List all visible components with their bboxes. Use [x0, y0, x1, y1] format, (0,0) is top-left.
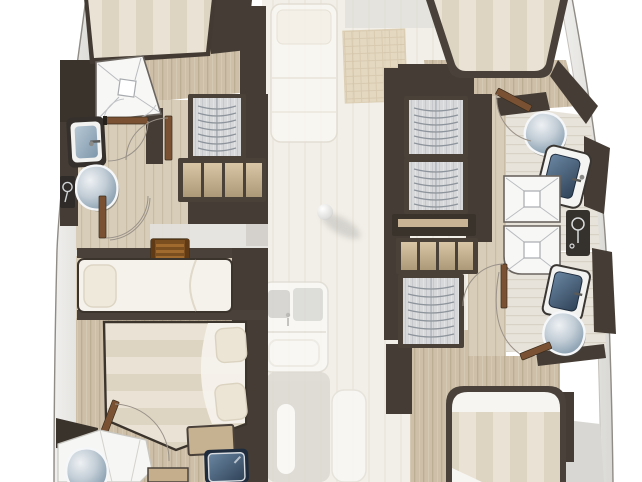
- floor-plan-svg: [0, 0, 642, 482]
- door-leaf: [501, 264, 507, 308]
- wall: [60, 60, 96, 124]
- mast-step-ball: [317, 204, 333, 220]
- door-leaf: [165, 116, 172, 160]
- port-forward-bed: [84, 0, 216, 64]
- pillow: [84, 265, 116, 307]
- wall: [386, 344, 412, 414]
- starboard-hull: [384, 0, 616, 482]
- faucet-icon: [574, 293, 582, 295]
- wall: [232, 248, 268, 320]
- starboard-aft-bed: [446, 386, 566, 482]
- wall: [592, 248, 616, 334]
- galley-island-ghost: [266, 372, 330, 482]
- starboard-shelf: [392, 214, 476, 236]
- starboard-hanging-locker-3: [398, 274, 464, 348]
- galley-sink-ghost: [262, 282, 328, 372]
- starboard-drawer-steps: [396, 238, 478, 274]
- port-aft-step-box: [148, 468, 188, 482]
- pillow: [214, 383, 248, 422]
- starboard-shower-panel: [566, 210, 590, 256]
- port-hanging-locker: [188, 94, 246, 160]
- saloon-settee-ghost: [271, 4, 337, 142]
- starboard-hanging-locker-1: [404, 96, 468, 158]
- wall: [240, 6, 266, 98]
- port-hull: [54, 0, 268, 482]
- port-aft-sink: [204, 448, 249, 482]
- galley-bench-ghost: [332, 390, 366, 482]
- wall: [146, 108, 163, 164]
- port-drawer-steps: [178, 158, 266, 202]
- door-leaf: [106, 117, 148, 124]
- door-leaf: [99, 196, 106, 238]
- pillow: [215, 327, 247, 363]
- shower-drain: [524, 191, 540, 207]
- port-shower-panel: [60, 176, 75, 208]
- port-forward-sink: [66, 116, 107, 168]
- shower-drain: [524, 242, 540, 258]
- port-midship-berth: [78, 259, 232, 312]
- starboard-hanging-locker-2: [404, 158, 468, 214]
- shower-drain: [118, 79, 136, 97]
- starboard-shower-1: [504, 176, 560, 222]
- floor-plan-canvas: Catamaran lower-deck interior floor plan…: [0, 0, 642, 482]
